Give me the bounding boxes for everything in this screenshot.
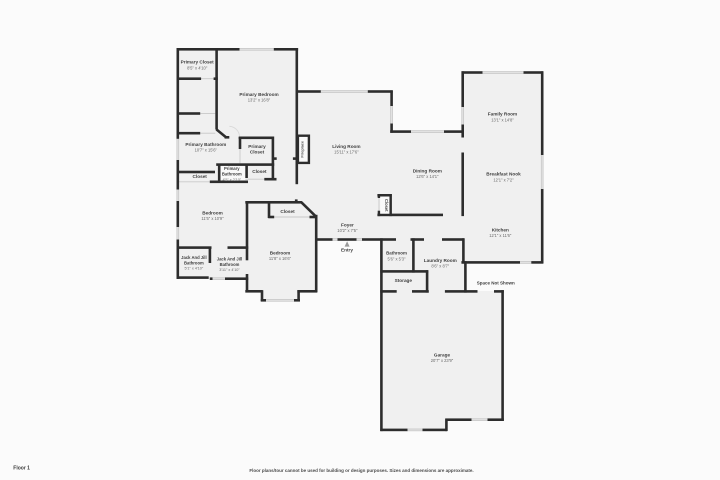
svg-text:Space Not Shown: Space Not Shown [477, 280, 515, 285]
svg-text:Storage: Storage [395, 278, 413, 283]
svg-text:Bathroom: Bathroom [220, 262, 240, 267]
svg-text:4'5" x 2'10": 4'5" x 2'10" [222, 178, 241, 182]
svg-text:Closet: Closet [193, 174, 208, 179]
svg-text:12'6" x 14'1": 12'6" x 14'1" [416, 174, 439, 179]
svg-text:8'6" x 8'7": 8'6" x 8'7" [431, 264, 449, 269]
svg-text:Bedroom: Bedroom [270, 250, 291, 255]
svg-text:5'1" x 4'10": 5'1" x 4'10" [185, 267, 204, 271]
svg-text:Garage: Garage [434, 353, 451, 358]
svg-text:Primary: Primary [224, 166, 240, 171]
svg-text:Living Room: Living Room [332, 144, 360, 149]
svg-text:11'5" x 10'9": 11'5" x 10'9" [201, 216, 224, 221]
svg-text:5'6" x 5'3": 5'6" x 5'3" [388, 256, 406, 261]
svg-text:Closet: Closet [280, 209, 295, 214]
svg-text:Jack And Jill: Jack And Jill [217, 257, 242, 262]
svg-text:Bathroom: Bathroom [184, 260, 204, 265]
svg-text:Jack And Jill: Jack And Jill [181, 255, 206, 260]
svg-text:Dining Room: Dining Room [413, 168, 442, 173]
svg-text:Closet: Closet [252, 169, 267, 174]
svg-text:13'1" x 14'8": 13'1" x 14'8" [491, 117, 514, 122]
svg-text:15'11" x 17'6": 15'11" x 17'6" [334, 150, 359, 155]
svg-text:Breakfast Nook: Breakfast Nook [486, 172, 521, 177]
svg-text:Closet: Closet [250, 150, 265, 155]
svg-text:Fireplace: Fireplace [300, 141, 304, 158]
svg-text:10'2" x 7'5": 10'2" x 7'5" [337, 228, 358, 233]
svg-text:Primary Closet: Primary Closet [181, 60, 215, 65]
svg-text:Kitchen: Kitchen [492, 227, 509, 232]
svg-text:12'1" x 7'2": 12'1" x 7'2" [493, 177, 514, 182]
svg-text:Entry: Entry [341, 248, 353, 253]
svg-text:Floor 1: Floor 1 [13, 465, 30, 471]
svg-text:Bathroom: Bathroom [386, 251, 407, 256]
svg-text:8'5" x 4'10": 8'5" x 4'10" [187, 65, 208, 70]
svg-text:3'11" x 4'10": 3'11" x 4'10" [219, 268, 240, 272]
svg-text:Primary Bedroom: Primary Bedroom [239, 92, 278, 97]
svg-text:Closet: Closet [384, 199, 389, 212]
svg-text:12'1" x 11'6": 12'1" x 11'6" [489, 233, 512, 238]
svg-text:20'7" x 23'9": 20'7" x 23'9" [431, 358, 454, 363]
svg-text:Primary: Primary [248, 144, 266, 149]
svg-text:11'8" x 16'6": 11'8" x 16'6" [269, 256, 292, 261]
svg-text:Bathroom: Bathroom [222, 172, 242, 177]
svg-text:Primary Bathroom: Primary Bathroom [185, 142, 226, 147]
svg-text:Bedroom: Bedroom [202, 210, 223, 215]
svg-text:Laundry Room: Laundry Room [424, 258, 457, 263]
svg-text:Family Room: Family Room [488, 112, 517, 117]
svg-text:Floor plans/tour cannot be use: Floor plans/tour cannot be used for buil… [249, 468, 473, 473]
svg-text:10'7" x 15'6": 10'7" x 15'6" [195, 148, 218, 153]
svg-text:13'2" x 16'8": 13'2" x 16'8" [248, 98, 271, 103]
svg-text:Foyer: Foyer [341, 222, 354, 227]
